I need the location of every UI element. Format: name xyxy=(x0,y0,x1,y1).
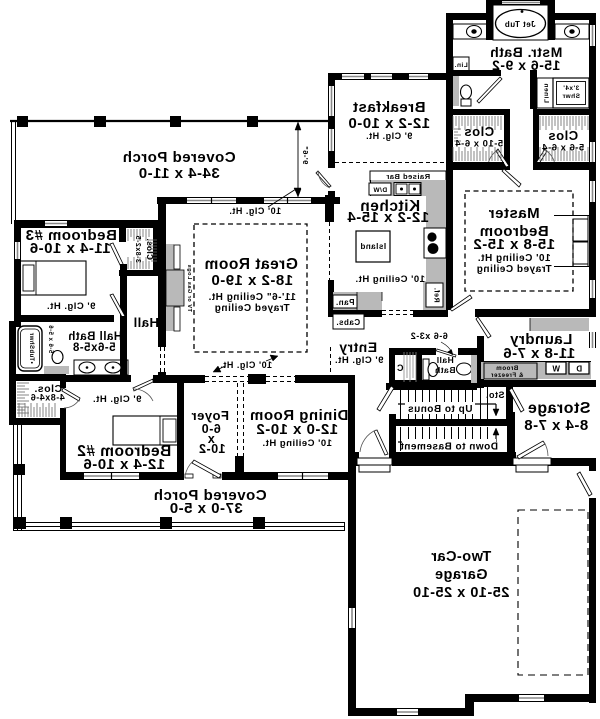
svg-text:Pan.: Pan. xyxy=(336,298,355,307)
svg-text:Garage: Garage xyxy=(435,567,488,583)
svg-text:Broom: Broom xyxy=(496,365,518,372)
svg-text:5-10 x 6-4: 5-10 x 6-4 xyxy=(455,139,504,150)
svg-text:Shwr: Shwr xyxy=(562,93,580,100)
svg-text:5-6 x 5-6: 5-6 x 5-6 xyxy=(47,325,53,354)
svg-text:Hall: Hall xyxy=(436,355,454,365)
svg-text:Jet Tub: Jet Tub xyxy=(504,20,535,29)
svg-text:12-2 x 10-0: 12-2 x 10-0 xyxy=(348,115,430,132)
svg-text:Linen: Linen xyxy=(543,83,550,103)
svg-text:10' Clg. Ht.: 10' Clg. Ht. xyxy=(229,206,281,216)
svg-text:9' Clg. Ht.: 9' Clg. Ht. xyxy=(93,394,142,405)
svg-text:Great Room: Great Room xyxy=(204,256,298,273)
svg-text:11-8 x 7-6: 11-8 x 7-6 xyxy=(503,345,576,362)
svg-text:12-2 x 15-4: 12-2 x 15-4 xyxy=(347,209,429,226)
svg-text:10' Ceiling Ht.: 10' Ceiling Ht. xyxy=(477,253,550,264)
svg-text:Clos: Clos xyxy=(464,124,494,139)
svg-text:Two-Car: Two-Car xyxy=(431,549,491,565)
svg-text:5-6x5-8: 5-6x5-8 xyxy=(72,342,115,354)
svg-text:Down to Basement: Down to Basement xyxy=(400,442,498,453)
svg-text:10' Ceiling Ht.: 10' Ceiling Ht. xyxy=(262,438,332,449)
svg-text:9' Clg. Ht.: 9' Clg. Ht. xyxy=(47,301,96,312)
svg-text:15-8 x 15-2: 15-8 x 15-2 xyxy=(473,236,555,253)
svg-text:Raised Bar: Raised Bar xyxy=(386,172,430,181)
svg-text:C: C xyxy=(397,363,404,373)
svg-text:12-0 x 10-2: 12-0 x 10-2 xyxy=(256,421,338,438)
svg-text:& Freezer: & Freezer xyxy=(491,372,524,379)
svg-text:Storage: Storage xyxy=(527,400,590,417)
svg-text:10' Ceiling Ht.: 10' Ceiling Ht. xyxy=(355,274,425,285)
svg-text:Cabs.: Cabs. xyxy=(336,318,360,327)
svg-text:11-4 x 10-6: 11-4 x 10-6 xyxy=(29,240,110,257)
svg-text:15-6 x 9-2: 15-6 x 9-2 xyxy=(492,57,561,73)
svg-text:9'-6": 9'-6" xyxy=(301,146,310,165)
svg-text:9' Clg. Ht.: 9' Clg. Ht. xyxy=(335,355,384,366)
svg-text:Lin.: Lin. xyxy=(454,62,468,69)
svg-text:3-8x2-5: 3-8x2-5 xyxy=(134,235,141,263)
svg-text:Clos.: Clos. xyxy=(145,238,154,260)
svg-text:37-0 x 5-0: 37-0 x 5-0 xyxy=(169,500,242,517)
svg-text:Trayed Ceiling: Trayed Ceiling xyxy=(476,264,551,275)
svg-text:10' Clg. Ht.: 10' Clg. Ht. xyxy=(220,360,272,370)
svg-text:10-2: 10-2 xyxy=(198,442,225,456)
svg-text:34-4 x 11-0: 34-4 x 11-0 xyxy=(138,165,219,182)
svg-text:18-2 x 19-0: 18-2 x 19-0 xyxy=(211,272,293,289)
svg-text:•TubShwr: •TubShwr xyxy=(28,332,34,363)
svg-text:Bath: Bath xyxy=(435,365,456,375)
svg-text:D: D xyxy=(576,365,582,374)
svg-text:W: W xyxy=(552,365,560,374)
svg-text:11'-6" Ceiling Ht.: 11'-6" Ceiling Ht. xyxy=(208,292,296,303)
svg-text:Clos: Clos xyxy=(548,128,578,143)
svg-text:12-4 x 10-6: 12-4 x 10-6 xyxy=(83,456,165,473)
svg-text:3'x4': 3'x4' xyxy=(563,85,579,92)
svg-text:5-6 x 6-4: 5-6 x 6-4 xyxy=(542,143,585,154)
svg-text:Ref.: Ref. xyxy=(433,287,440,302)
svg-text:Sto.: Sto. xyxy=(486,390,505,400)
svg-text:Master: Master xyxy=(488,205,539,222)
svg-text:Up to Bonus: Up to Bonus xyxy=(408,404,473,415)
svg-text:Foyer: Foyer xyxy=(191,408,229,423)
svg-text:D/W: D/W xyxy=(373,187,388,194)
svg-text:Hall: Hall xyxy=(133,315,159,330)
svg-text:4-8x4-6: 4-8x4-6 xyxy=(30,393,65,403)
svg-text:8-4 x 7-8: 8-4 x 7-8 xyxy=(524,417,589,434)
svg-text:6-6 x3-2: 6-6 x3-2 xyxy=(410,331,448,341)
svg-text:Entry: Entry xyxy=(339,339,377,355)
svg-text:Island: Island xyxy=(360,242,386,251)
svg-text:9' Clg. Ht.: 9' Clg. Ht. xyxy=(366,131,413,141)
svg-text:Covered Porch: Covered Porch xyxy=(122,149,235,166)
svg-text:25-10 x 25-10: 25-10 x 25-10 xyxy=(413,585,510,601)
svg-text:TV or Gas Logs: TV or Gas Logs xyxy=(186,264,192,312)
svg-text:Breakfast: Breakfast xyxy=(353,99,426,116)
svg-text:Trayed Ceiling: Trayed Ceiling xyxy=(214,303,289,314)
